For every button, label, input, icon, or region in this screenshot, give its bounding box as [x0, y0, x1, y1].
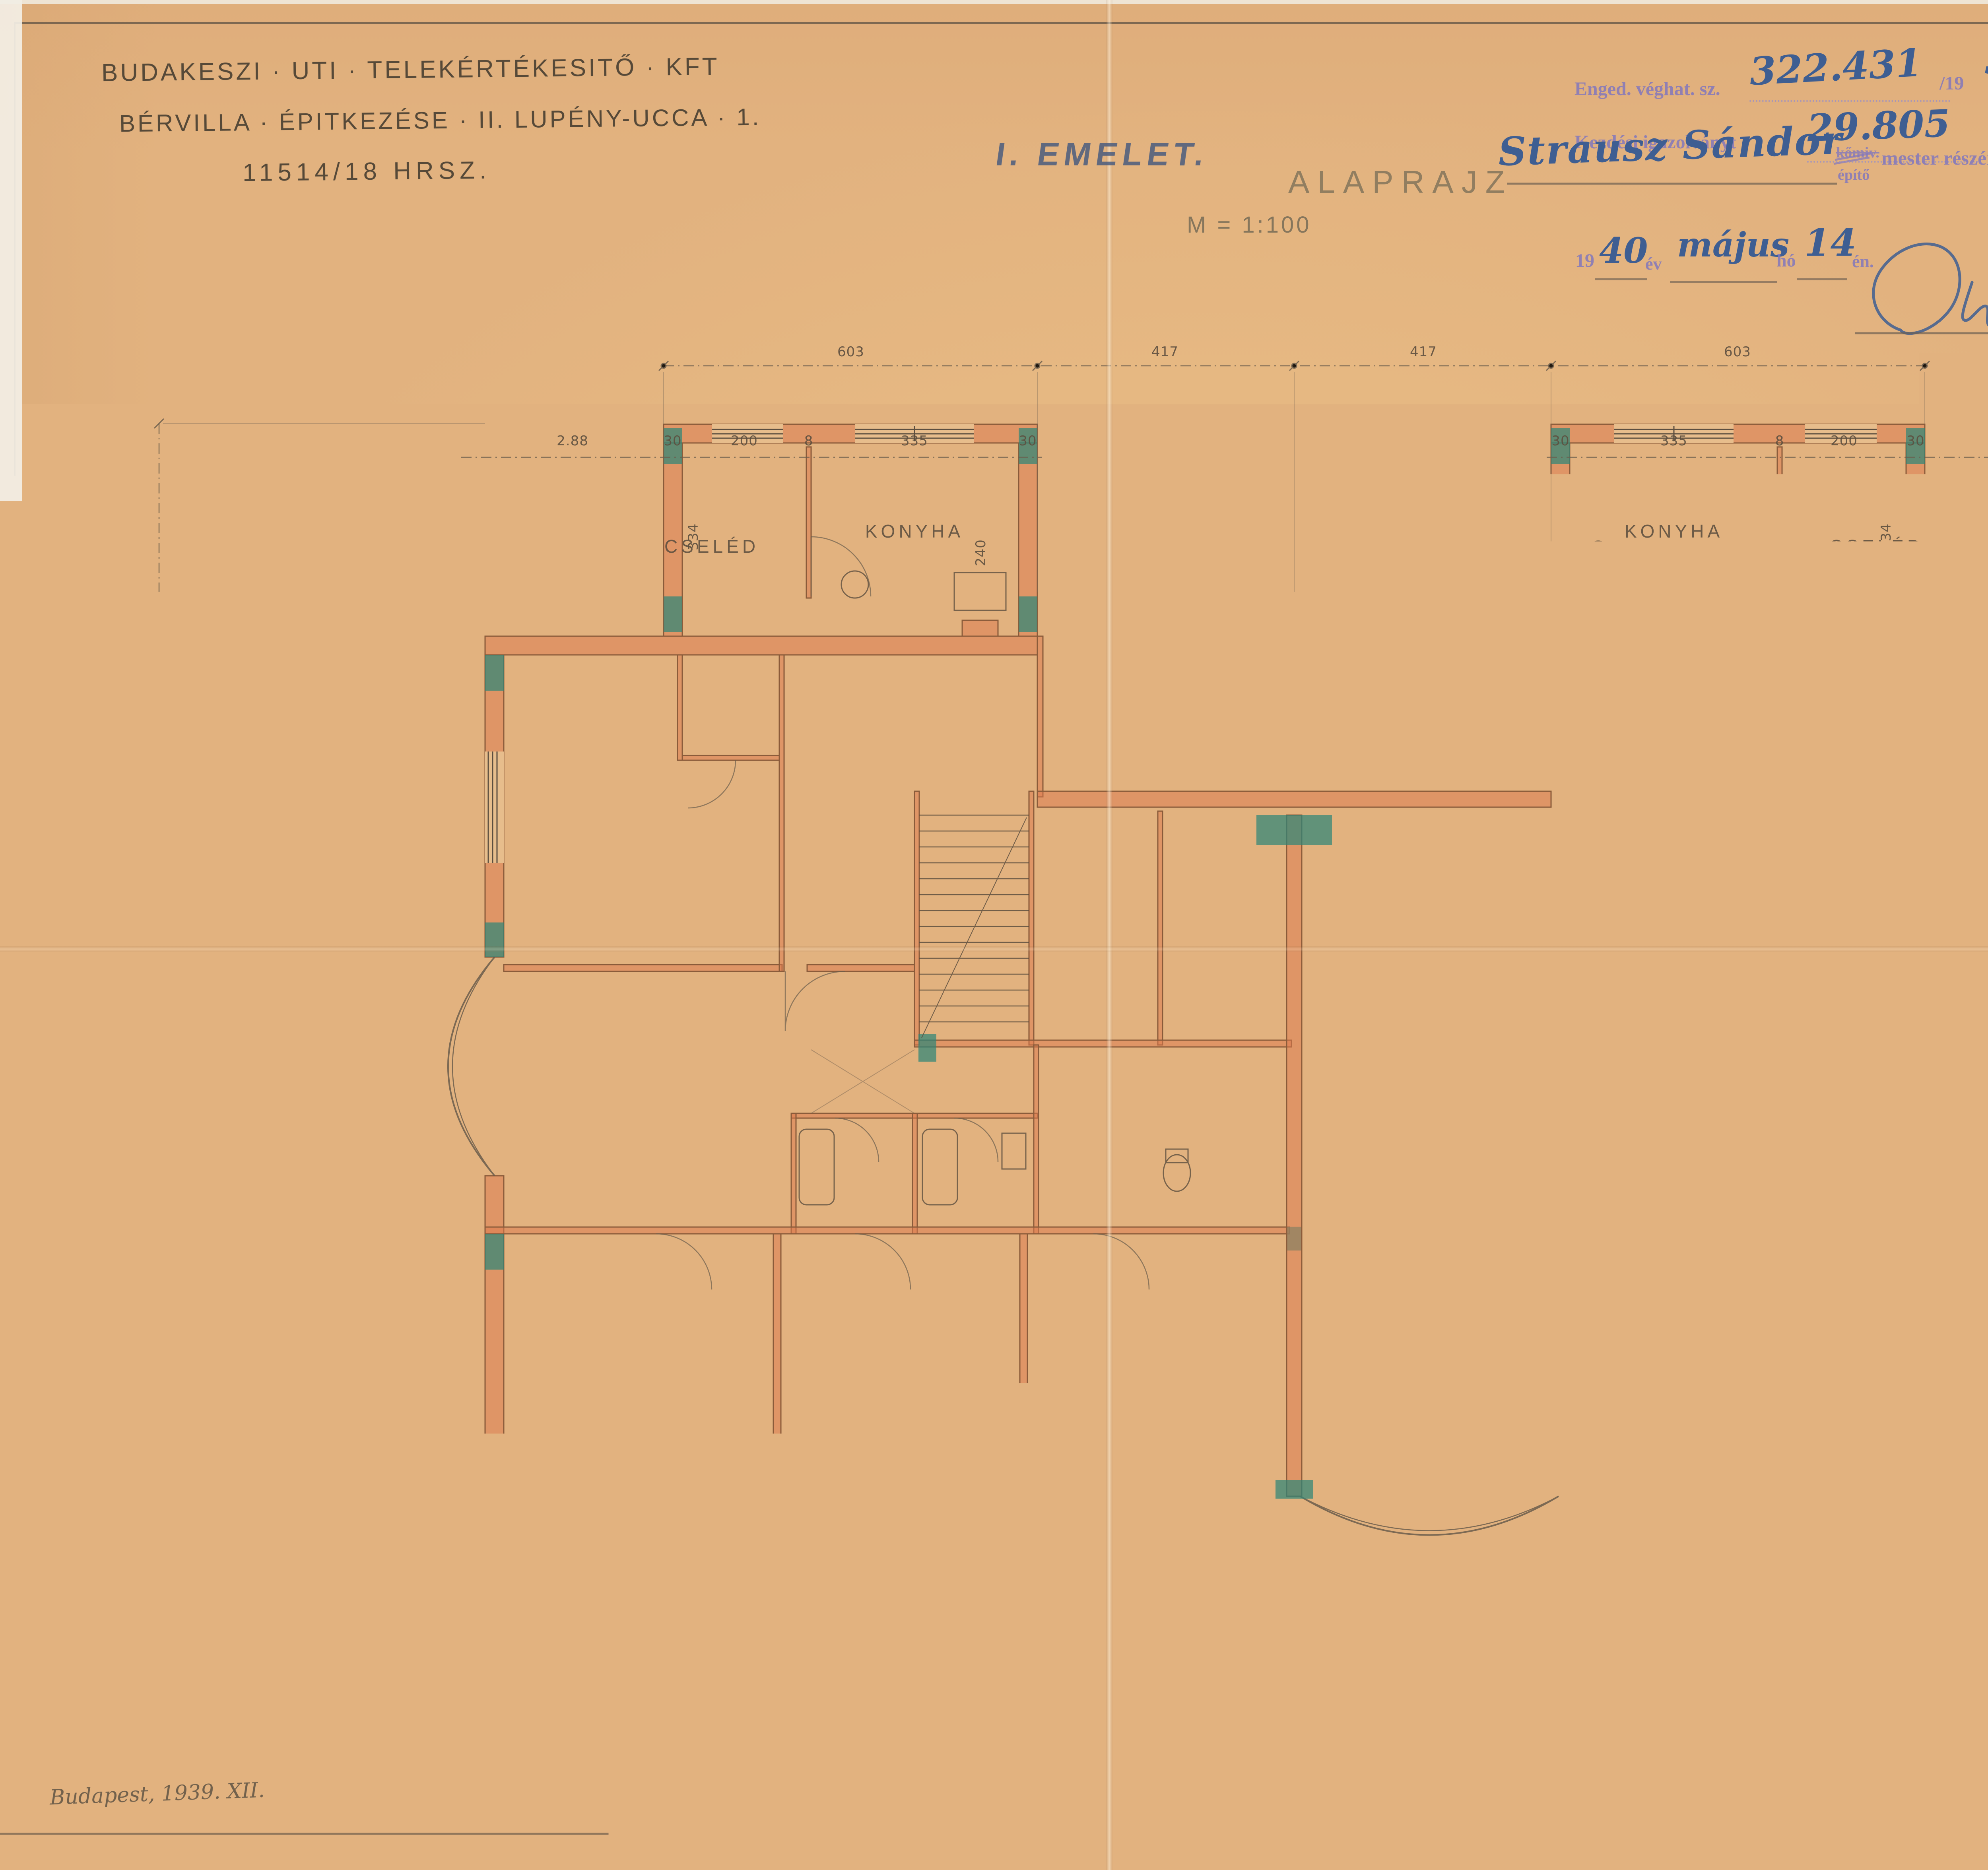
- room-label: CSELÉD: [664, 536, 759, 557]
- dimension-label: 12: [1293, 887, 1311, 903]
- dimension-label: 410: [1173, 1459, 1200, 1475]
- room-label: EBÉDLŐ: [1380, 1384, 1475, 1404]
- dimension-label: 480: [988, 1358, 1004, 1385]
- dimension-label: 8: [1827, 824, 1836, 840]
- dimension-label: 480: [1576, 1358, 1592, 1385]
- date-day-hand: 14: [1804, 221, 1856, 265]
- room-label: GARD: [1726, 934, 1793, 955]
- dimension-label: 30: [1906, 433, 1924, 449]
- room-label: KONYHA: [1625, 521, 1723, 542]
- bottom-left-signature: [300, 1750, 472, 1797]
- room-label: EBÉDLŐ: [604, 910, 700, 930]
- dimension-label: 332: [522, 1106, 538, 1133]
- room-label: FÜRDŐ: [801, 1159, 884, 1180]
- room-label: HÁLÓ: [1638, 1368, 1702, 1388]
- dimension-label: 1.10: [127, 1500, 143, 1532]
- date-month-hand: május: [1677, 225, 1789, 264]
- dimension-label: 110: [955, 824, 982, 840]
- dimension-label: 530: [1596, 885, 1612, 912]
- dimension-label: 3.00: [1110, 911, 1126, 942]
- scale-label: M = 1:100: [1187, 212, 1312, 238]
- dimension-label: 30: [1532, 1520, 1548, 1538]
- date-ev-label: év: [1645, 254, 1662, 274]
- dimension-label: 360: [991, 1155, 1007, 1183]
- dimension-label: 17: [1549, 866, 1567, 882]
- dimension-label: 3.85: [907, 1459, 938, 1475]
- red-cross-mark: [327, 817, 460, 1031]
- room-label: TÁLALÓ: [1812, 693, 1903, 714]
- room-label: HÁLÓ: [886, 1368, 950, 1388]
- dimension-label: 12: [1798, 1458, 1816, 1474]
- district-engineer-signature: [1873, 244, 1988, 340]
- dimension-label: 8: [1155, 866, 1164, 882]
- crossed-out-trade: kőmiv.: [1836, 144, 1879, 161]
- annotation-label: átszell.: [1609, 761, 1646, 773]
- room-label: HALL: [574, 1195, 634, 1216]
- date-ho-label: hó: [1776, 250, 1796, 271]
- room-label: KONYHA: [1306, 962, 1404, 983]
- room-label: HÁLÓ: [1916, 1368, 1980, 1388]
- dimension-label: 4.50: [1958, 822, 1988, 838]
- floor-title: I. EMELET.: [993, 136, 1211, 173]
- dimension-label: 15: [1260, 1165, 1276, 1183]
- permit-decision-number: 322.431: [1748, 40, 1923, 94]
- room-label: ERKÉLY: [1248, 738, 1340, 759]
- room-label: HÁLÓ: [608, 1368, 672, 1388]
- dimension-label: 603: [1724, 344, 1751, 360]
- dimension-label: 13 08: [986, 1587, 1026, 1603]
- dimension-label: 240: [1591, 539, 1607, 566]
- dimension-label: 3.85: [1650, 1459, 1682, 1475]
- room-label: KONYHA: [865, 521, 964, 542]
- dimension-label: 8: [804, 433, 813, 449]
- dimension-label: 334: [685, 523, 701, 550]
- room-label: ELŐ: [801, 1085, 848, 1106]
- dimension-label: 2.10: [1309, 1522, 1324, 1554]
- dimension-label: 4.50: [598, 822, 630, 838]
- dimension-lines: [159, 366, 1988, 1610]
- dimension-label: 30: [130, 1454, 146, 1472]
- dimension-label: 110: [1675, 824, 1703, 840]
- dimension-label: 30: [466, 1456, 484, 1472]
- dimension-label: 8: [753, 824, 762, 840]
- dimension-label: 80: [1262, 771, 1278, 789]
- dimension-label: 334: [1878, 523, 1894, 550]
- date-en-label: én.: [1852, 251, 1874, 272]
- dimension-label: 15: [1305, 1165, 1320, 1183]
- issued-for-text: mester részére kiadta.: [1881, 146, 1988, 169]
- room-label: EBÉDLŐ: [1889, 910, 1984, 930]
- dimension-label: 8: [1425, 866, 1434, 882]
- dimension-label: 8: [1554, 1457, 1563, 1473]
- dimension-label: 3.42: [125, 495, 141, 527]
- dimension-label: 410: [1388, 1459, 1415, 1475]
- dimension-label: 2.00: [1475, 866, 1507, 882]
- date-19-label: 19: [1575, 250, 1594, 272]
- dimension-label: K 80: [1571, 800, 1587, 832]
- permit-decision-year: 39: [1985, 35, 1988, 84]
- room-label: KONYHA: [1184, 962, 1283, 983]
- room-label: FÜRDŐ: [1705, 1159, 1788, 1180]
- dimension-label: 200: [731, 433, 758, 449]
- parcel-number: 11514/18 HRSZ.: [243, 156, 491, 187]
- dimension-label: 2.10: [1257, 1522, 1273, 1554]
- room-label: FÜRDŐ: [913, 1159, 996, 1180]
- owner-role-note: építtető: [1453, 1799, 1526, 1824]
- room-label: ELŐ: [1739, 1085, 1787, 1106]
- dimension-label: 2.00: [1081, 866, 1113, 882]
- dimension-label: 360: [1573, 1155, 1589, 1183]
- date-underline-2: [1670, 281, 1777, 283]
- annotation-label: sejtégla soronkint 5 ×: [1644, 868, 1656, 984]
- dimension-label: 500: [540, 804, 556, 831]
- annotation-label: sejtégla soronkint 5 ×: [926, 868, 938, 984]
- dimension-label: 3.70: [1299, 1002, 1315, 1034]
- dimension-label: 110: [1607, 824, 1634, 840]
- dotted-rule-1: [1749, 100, 1950, 102]
- dimension-label: 417: [1410, 344, 1437, 360]
- dimension-label: 30: [664, 433, 681, 449]
- dimension-label: 17: [1009, 824, 1027, 840]
- room-label: CSELÉD: [1432, 962, 1526, 983]
- date-year-hand: 40: [1599, 230, 1648, 271]
- dimension-label: 30: [1269, 860, 1285, 878]
- drawing-type-title: ALAPRAJZ: [1288, 164, 1513, 200]
- ink-specks: [1211, 50, 1988, 1856]
- dimension-label: 450: [641, 1459, 668, 1475]
- dimension-label: 240: [973, 539, 989, 566]
- dimension-label: 30: [1031, 1520, 1047, 1538]
- dimension-label: 12: [772, 1458, 790, 1474]
- dimension-label: 30: [1551, 433, 1569, 449]
- room-label: HALL: [1954, 1195, 1988, 1216]
- dimension-label: 3.00: [1454, 911, 1470, 942]
- annotation-label: vasb. sejtégla: [1526, 978, 1538, 1050]
- dimension-label: 530: [968, 885, 984, 912]
- date-underline-1: [1595, 278, 1647, 280]
- dimension-ticks: [154, 361, 1988, 1615]
- room-label: ELŐ: [1018, 1085, 1065, 1106]
- room-label: FÜRDŐ: [1593, 1159, 1676, 1180]
- dimension-label: 8: [1029, 1457, 1039, 1473]
- dimension-label: 110: [886, 824, 913, 840]
- room-label: CSELÉD: [1062, 962, 1157, 983]
- dimension-label: 4.50: [536, 1328, 551, 1360]
- archival-floor-plan-page: CSELÉDKONYHAKONYHACSELÉDTÁLALÓTÁLALÓEBÉD…: [0, 0, 1988, 1870]
- room-label: ERKÉLY: [1393, 1513, 1485, 1534]
- dimension-label: 3.70: [1265, 1002, 1281, 1034]
- dimension-label: 30: [1019, 433, 1037, 449]
- dimension-label: 13 08: [1793, 1587, 1833, 1603]
- date-underline-3: [1797, 278, 1847, 280]
- permit-decision-label: Enged. véghat. sz.: [1574, 78, 1720, 100]
- dimension-label: 450: [1921, 1459, 1948, 1475]
- dimension-label: 2.00: [1346, 866, 1378, 882]
- builder-trade-label: építő: [1838, 166, 1870, 184]
- dimension-label: 17: [1021, 866, 1039, 882]
- dimension-label: 417: [1151, 344, 1178, 360]
- dimension-label: 8: [1775, 433, 1784, 449]
- dimension-label: 8: [549, 955, 558, 971]
- dimension-label: 5.15: [1259, 1280, 1275, 1312]
- room-label: ERKÉLY: [1103, 1513, 1195, 1534]
- dimension-label: 2.88: [557, 433, 588, 449]
- dimension-label: 1.35: [1753, 824, 1785, 840]
- room-label: CSELÉD: [1829, 536, 1924, 557]
- room-label: TÁLALÓ: [685, 693, 777, 714]
- dimension-label: 12: [1274, 1458, 1292, 1474]
- dimension-label: 12: [1297, 1458, 1314, 1474]
- room-label: GARD: [796, 934, 863, 955]
- dimension-label: 603: [837, 344, 864, 360]
- dimension-label: 135: [806, 824, 833, 840]
- dimension-label: 2.00: [1211, 866, 1242, 882]
- annotation-label: átszell.: [942, 761, 978, 773]
- dimension-label: K 80: [993, 800, 1009, 832]
- room-label: EBÉDLŐ: [1113, 1384, 1209, 1404]
- room-label: ELŐ: [1523, 1085, 1570, 1106]
- dimension-label: 5.15: [1306, 1280, 1322, 1312]
- annotation-label: vasb. sejtégla: [1044, 978, 1056, 1050]
- dimension-label: 200: [1831, 433, 1858, 449]
- dimension-label: 13.58: [143, 1037, 159, 1078]
- dimension-label: 80: [1305, 771, 1320, 789]
- dimension-label: 335: [901, 433, 928, 449]
- permit-decision-year-prefix: /19: [1939, 72, 1964, 94]
- dimension-label: 335: [1660, 433, 1687, 449]
